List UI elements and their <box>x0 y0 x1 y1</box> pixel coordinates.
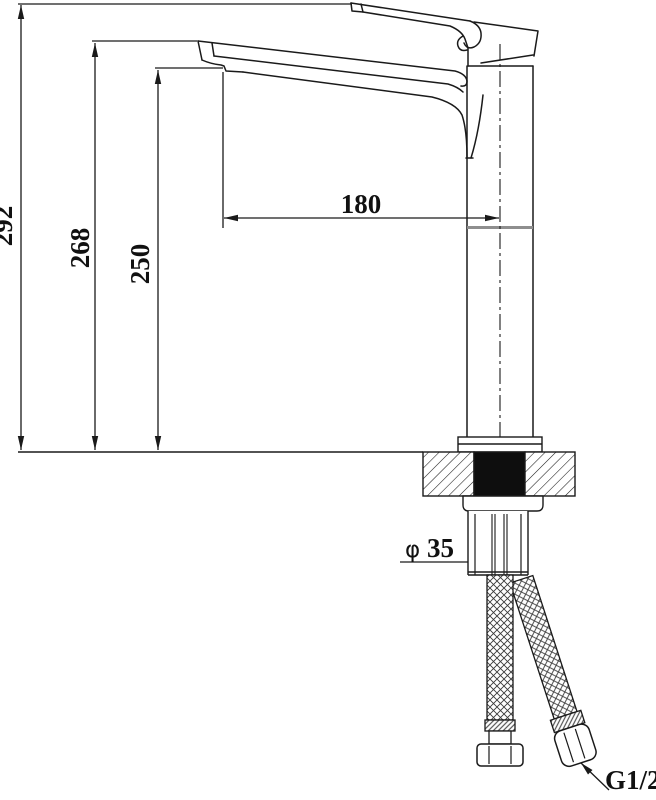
spout-bottom-sweep <box>243 72 467 157</box>
hose-vertical-hex-nut <box>477 744 523 766</box>
supply-hose-angled <box>504 574 598 769</box>
spout-tip-face <box>198 41 202 60</box>
handle-ferrule <box>458 36 467 51</box>
drawing-svg: 292 268 250 180 φ 35 G1/2 <box>0 0 656 800</box>
shank-body <box>468 511 528 575</box>
handle-bottom-edge <box>363 12 468 48</box>
dim-diameter-label: 35 <box>427 533 454 563</box>
arrow-up-250 <box>155 70 161 84</box>
dim-spout-top-height-label: 268 <box>65 228 95 269</box>
cap-bottom-slant <box>481 55 533 63</box>
lever-handle <box>351 3 481 51</box>
spout-inner-contour <box>214 56 463 92</box>
locknut <box>463 496 543 511</box>
handle-top-edge <box>351 3 470 21</box>
counter-hatch-left <box>423 452 474 496</box>
thread-size-label: G1/2 <box>605 765 656 795</box>
counter-section <box>18 452 575 496</box>
faucet-technical-drawing: 292 268 250 180 φ 35 G1/2 <box>0 0 656 800</box>
counter-hatch-right <box>525 452 575 496</box>
hose-angled-braid <box>510 576 577 719</box>
dim-reach-label: 180 <box>341 189 382 219</box>
arrow-left-180 <box>224 215 238 221</box>
arrow-down-268 <box>92 436 98 450</box>
shank-section-core <box>474 452 525 496</box>
spout <box>198 41 483 158</box>
hose-vertical-braid <box>487 575 513 720</box>
arrow-down-292 <box>18 436 24 450</box>
spout-rear-sweep <box>471 95 483 158</box>
locknut-and-shank <box>463 496 543 575</box>
dim-outlet-height-label: 250 <box>125 244 155 285</box>
diameter-symbol: φ <box>405 537 420 563</box>
arrow-up-268 <box>92 43 98 57</box>
arrow-up-292 <box>18 5 24 19</box>
arrow-right-180 <box>485 215 499 221</box>
spout-tip-notch <box>212 43 214 56</box>
spout-aerator-step <box>202 60 243 72</box>
hose-vertical-collar <box>489 731 511 744</box>
dim-overall-height-label: 292 <box>0 206 18 247</box>
hose-vertical-ferrule <box>485 720 515 731</box>
spout-top-edge <box>198 41 467 86</box>
dimension-lines <box>18 4 609 790</box>
mounting-flange <box>458 437 542 452</box>
arrow-down-250 <box>155 436 161 450</box>
cap-top-edge <box>474 22 538 56</box>
